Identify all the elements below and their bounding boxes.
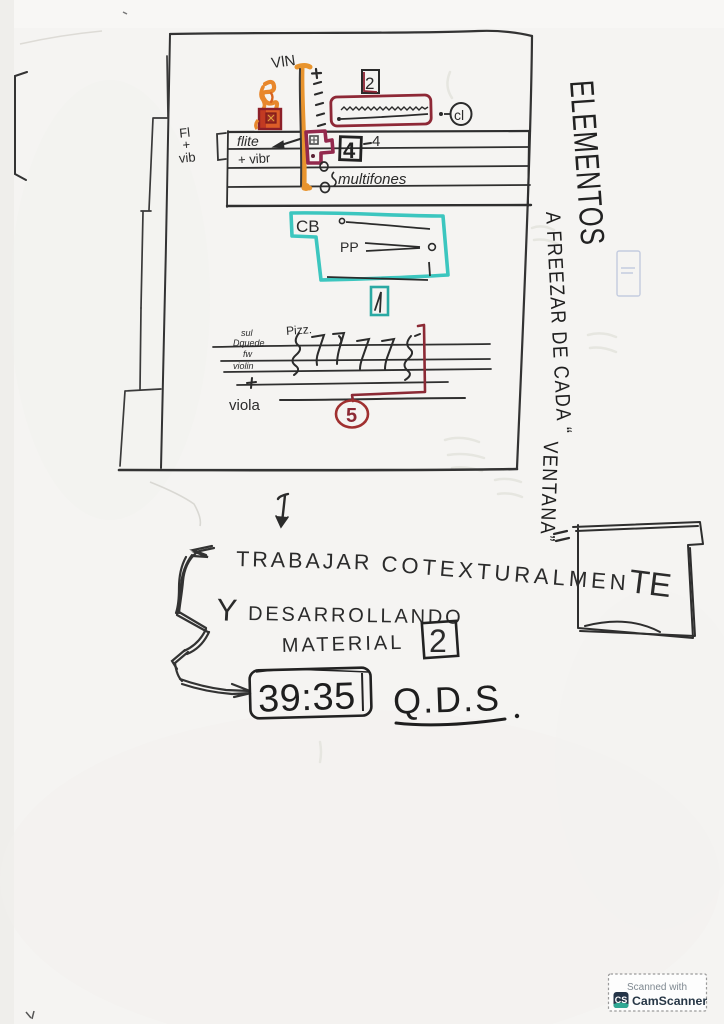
svg-text:+ vibr: + vibr (238, 150, 272, 167)
svg-text:MATERIAL: MATERIAL (282, 632, 405, 657)
svg-text:cl: cl (454, 107, 464, 123)
svg-text:CS: CS (615, 995, 628, 1005)
svg-text:flite: flite (237, 133, 259, 149)
svg-text:VENTANA”: VENTANA” (535, 441, 562, 543)
svg-text:vib: vib (178, 149, 196, 166)
svg-text:4: 4 (343, 138, 356, 163)
svg-text:viola: viola (229, 397, 261, 414)
svg-text:Q.D.S: Q.D.S (392, 677, 501, 722)
svg-text:5: 5 (346, 405, 357, 427)
svg-text:PP: PP (340, 239, 359, 255)
svg-text:4: 4 (372, 133, 380, 150)
svg-text:CamScanner: CamScanner (632, 994, 707, 1008)
svg-text:Y: Y (216, 592, 238, 628)
svg-text:2: 2 (365, 74, 374, 93)
svg-text:sul: sul (241, 328, 254, 338)
svg-text:TE: TE (627, 562, 673, 604)
svg-text:Pizz.: Pizz. (286, 322, 313, 338)
svg-text:Scanned with: Scanned with (627, 982, 687, 993)
svg-text:CB: CB (296, 217, 320, 236)
svg-text:39:35: 39:35 (257, 675, 356, 720)
svg-text:fw: fw (243, 349, 253, 359)
svg-text:2: 2 (429, 623, 447, 659)
svg-text:multifones: multifones (338, 171, 407, 188)
svg-text:VlN: VlN (270, 52, 296, 72)
svg-text:TRABAJAR: TRABAJAR (236, 547, 373, 575)
svg-text:violin: violin (233, 361, 254, 371)
